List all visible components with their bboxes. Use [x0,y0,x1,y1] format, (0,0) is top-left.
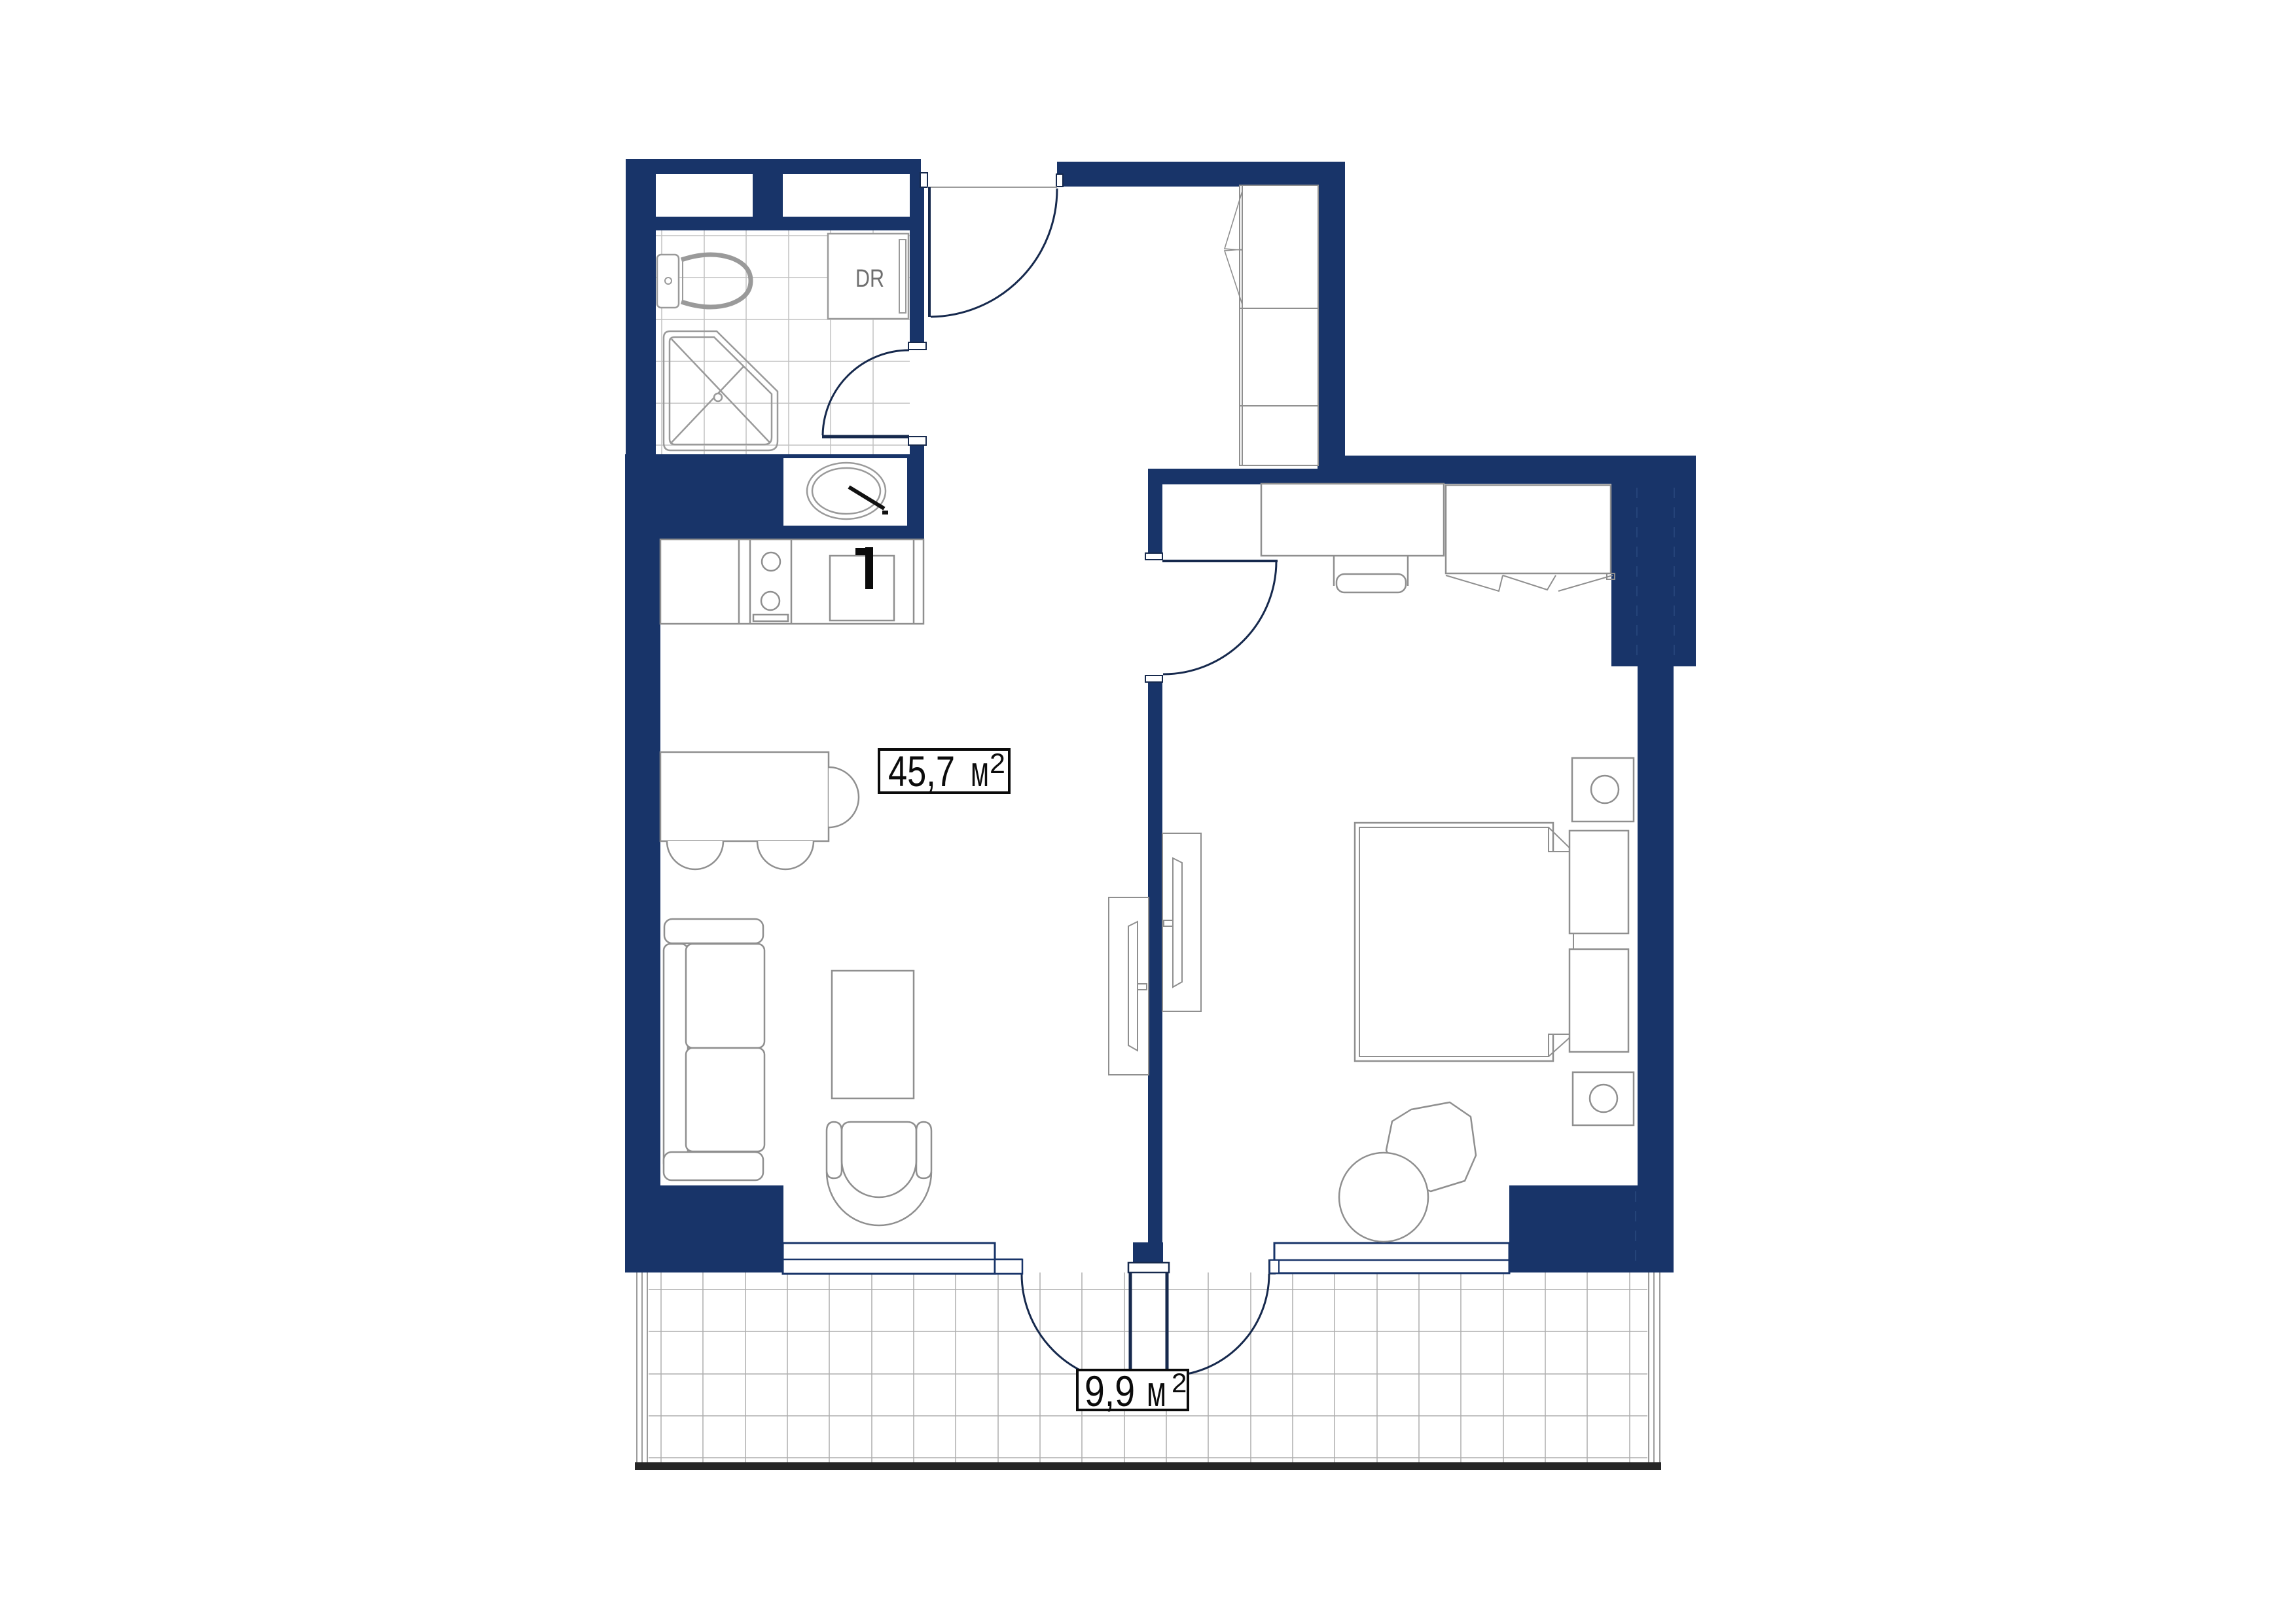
svg-text:9,9: 9,9 [1085,1367,1135,1415]
svg-text:2: 2 [1172,1367,1187,1398]
svg-text:2: 2 [990,748,1005,780]
svg-text:DR: DR [855,265,884,293]
svg-text:м: м [1147,1367,1166,1415]
svg-text:м: м [971,747,989,795]
svg-text:45,7: 45,7 [888,747,955,795]
